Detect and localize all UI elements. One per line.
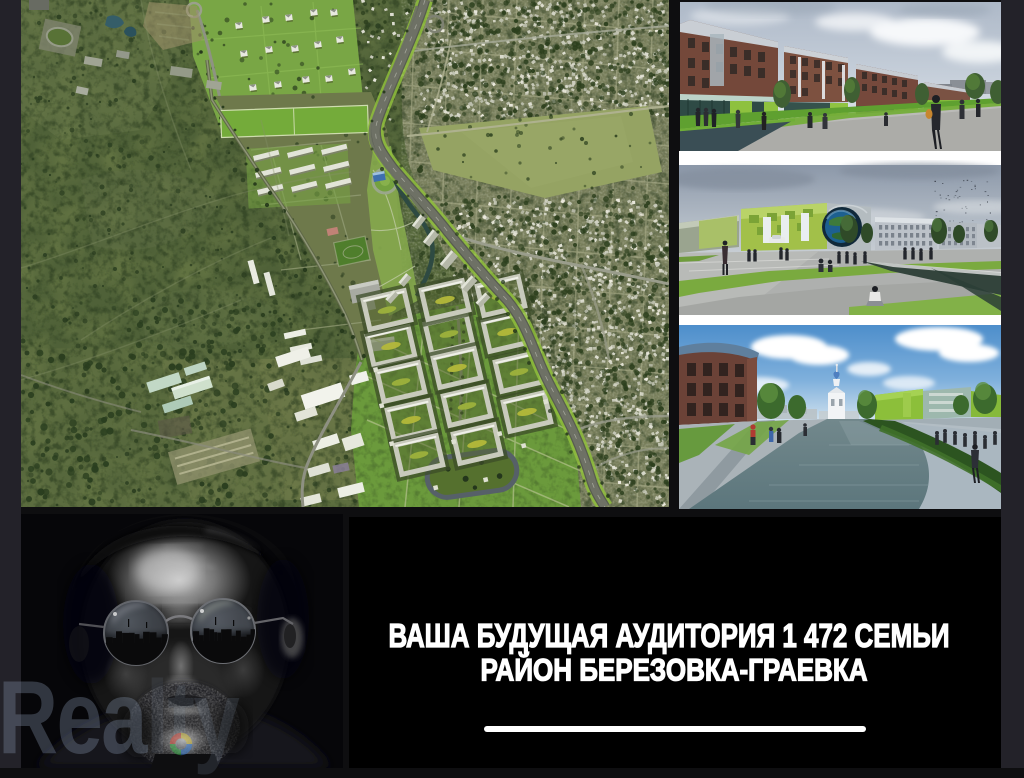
svg-text:РАЙОН БЕРЕЗОВКА-ГРАЕВКА: РАЙОН БЕРЕЗОВКА-ГРАЕВКА: [481, 652, 868, 688]
svg-text:ВАША БУДУЩАЯ АУДИТОРИЯ 1 472 С: ВАША БУДУЩАЯ АУДИТОРИЯ 1 472 СЕМЬИ: [389, 618, 950, 655]
